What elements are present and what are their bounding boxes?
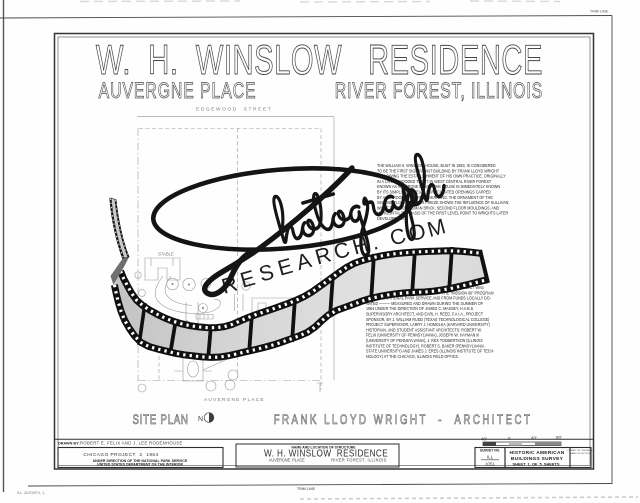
svg-text:UNITED STATES DEPARTMENT OF TH: UNITED STATES DEPARTMENT OF THE INTERIOR — [97, 462, 183, 466]
svg-text:CHICAGO PROJECT 2 1964: CHICAGO PROJECT 2 1964 — [83, 452, 158, 457]
svg-text:FRANK LLOYD WRIGHT - ARCHITE: FRANK LLOYD WRIGHT - ARCHITECT — [274, 413, 531, 428]
svg-text:RIVER FOREST, ILLINOIS: RIVER FOREST, ILLINOIS — [335, 80, 543, 104]
svg-text:ROBERT E. FELIX AND J. LEE R: ROBERT E. FELIX AND J. LEE RODENHOUSE — [80, 441, 183, 446]
svg-text:40': 40' — [531, 436, 537, 441]
svg-text:W. H. WINSLOW RESIDENCE: W. H. WINSLOW RESIDENCE — [96, 36, 544, 84]
svg-text:1051: 1051 — [485, 462, 496, 467]
svg-text:TRIM LINE: TRIM LINE — [297, 487, 316, 491]
svg-text:40': 40' — [481, 437, 487, 442]
svg-text:HISTORIC AMERICAN: HISTORIC AMERICAN — [510, 450, 565, 456]
svg-text:N: N — [198, 416, 203, 423]
svg-text:SHEET 1 OF 5 SHEETS: SHEET 1 OF 5 SHEETS — [513, 461, 560, 466]
svg-text:ILL: ILL — [487, 455, 494, 460]
svg-text:AUVERGNE PLACE: AUVERGNE PLACE — [269, 457, 305, 463]
svg-text:EDGEWOOD STREET: EDGEWOOD STREET — [196, 107, 272, 113]
svg-text:SURVEY NO.: SURVEY NO. — [480, 448, 500, 452]
svg-text:NOLOGY) AT THE CHICAGO, ILLINO: NOLOGY) AT THE CHICAGO, ILLINOIS FIELD O… — [366, 354, 459, 359]
svg-text:DRAWN BY:: DRAWN BY: — [58, 442, 80, 446]
svg-text:80': 80' — [556, 435, 562, 440]
svg-text:HABS COLLECTION: HABS COLLECTION — [570, 452, 590, 455]
svg-text:AUVERGNE PLACE: AUVERGNE PLACE — [204, 397, 265, 403]
svg-text:STABLE: STABLE — [158, 252, 174, 257]
svg-text:LIBRARY OF CONGRESS: LIBRARY OF CONGRESS — [568, 449, 593, 452]
svg-text:SITE PLAN: SITE PLAN — [132, 413, 188, 428]
svg-text:ILL. 26-RIVFO, 1-: ILL. 26-RIVFO, 1- — [17, 491, 46, 495]
svg-text:RIVER FOREST, ILLINOIS: RIVER FOREST, ILLINOIS — [331, 457, 386, 463]
svg-text:AUVERGNE PLACE: AUVERGNE PLACE — [99, 80, 257, 104]
svg-text:TRIM LINE: TRIM LINE — [590, 10, 609, 14]
